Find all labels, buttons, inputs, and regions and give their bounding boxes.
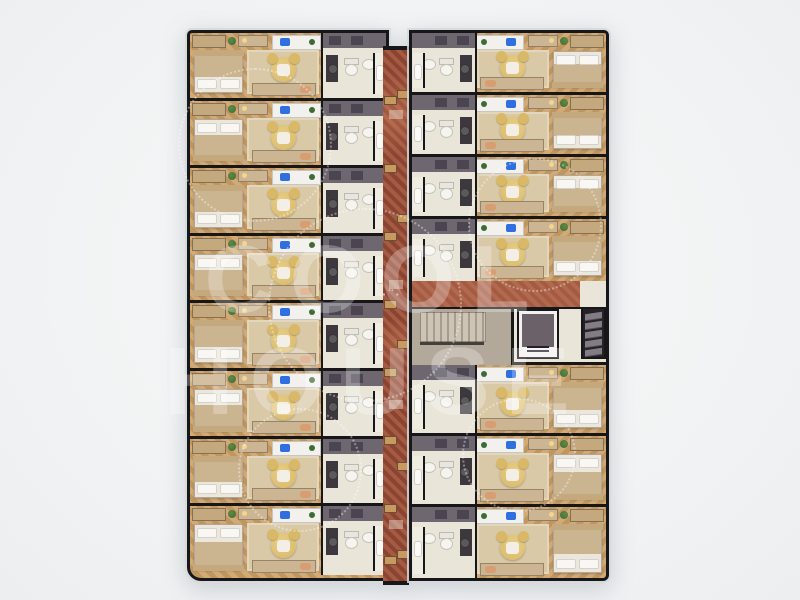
laptop — [280, 38, 290, 46]
chair-armrest — [518, 458, 529, 469]
shelf-slat — [585, 321, 602, 329]
bathroom-closet — [412, 219, 475, 234]
plant — [560, 99, 568, 107]
wardrobe-shelf — [192, 238, 226, 251]
bathroom-vanity — [326, 123, 338, 150]
lounge-chair — [500, 117, 525, 142]
living-area — [473, 365, 606, 433]
chair-armrest — [267, 391, 278, 402]
sink-bowl — [460, 188, 470, 198]
toilet-bowl — [440, 126, 453, 138]
pillow — [197, 528, 217, 538]
desk — [272, 238, 321, 253]
living-area — [190, 303, 323, 368]
pillow — [556, 262, 576, 272]
bed-headboard — [193, 290, 244, 296]
apartment-unit — [190, 236, 386, 304]
chair-armrest — [496, 531, 507, 542]
lounge-chair — [271, 328, 296, 353]
bed-pillows — [197, 258, 240, 268]
chair-armrest — [518, 387, 529, 398]
bed — [194, 119, 243, 161]
living-area — [473, 507, 606, 578]
desk — [475, 367, 524, 382]
chair-cushion — [277, 540, 290, 552]
apartment-unit — [190, 168, 386, 236]
sink-bowl — [460, 64, 470, 74]
plant — [228, 443, 236, 451]
bathroom-vanity — [326, 190, 338, 217]
bed-blanket — [195, 191, 242, 212]
desk-plant — [481, 39, 487, 45]
shelf-slat — [585, 348, 602, 356]
bed — [194, 254, 243, 296]
bed — [553, 175, 602, 211]
toilet — [344, 58, 357, 74]
apartment-unit — [190, 506, 386, 575]
desk — [272, 441, 321, 456]
accent-pillow — [485, 142, 496, 149]
bed-blanket — [554, 188, 601, 206]
closet-panel — [457, 222, 469, 231]
closet-panel — [351, 104, 363, 113]
bed-blanket — [195, 270, 242, 291]
apartment-unit — [190, 33, 386, 101]
bathroom-closet — [323, 168, 386, 183]
bed — [194, 389, 243, 431]
bathroom-closet — [412, 365, 475, 380]
bathroom-closet — [323, 439, 386, 454]
apartment-unit — [412, 33, 606, 95]
closet-panel — [435, 222, 447, 231]
pillow — [220, 123, 240, 133]
pillow — [556, 55, 576, 65]
pillow — [579, 262, 599, 272]
toilet — [344, 328, 357, 344]
chair-cushion — [506, 398, 519, 410]
accent-pillow — [300, 491, 311, 498]
bed-pillows — [556, 414, 599, 424]
accent-pillow — [485, 421, 496, 428]
bathroom — [412, 95, 477, 154]
pillow — [579, 135, 599, 145]
chair-armrest — [289, 324, 300, 335]
closet-panel — [457, 510, 469, 519]
bathroom-closet — [323, 33, 386, 48]
closet-panel — [329, 509, 341, 518]
closet-panel — [457, 439, 469, 448]
wardrobe-shelf — [570, 221, 604, 234]
apartment-unit — [412, 219, 606, 281]
bathroom — [321, 371, 386, 436]
bed-pillows — [556, 55, 599, 65]
bed-pillows — [197, 79, 240, 89]
chair-armrest — [496, 238, 507, 249]
closet-panel — [329, 104, 341, 113]
bed — [553, 237, 602, 276]
elevator — [517, 309, 559, 359]
toilet — [344, 396, 357, 412]
living-area — [190, 236, 323, 301]
plant — [228, 375, 236, 383]
accent-pillow — [485, 269, 496, 276]
accent-pillow — [300, 424, 311, 431]
closet-panel — [435, 98, 447, 107]
landing-end — [580, 281, 606, 309]
desk-plant — [481, 371, 487, 377]
bed — [553, 383, 602, 428]
bathroom — [321, 33, 386, 98]
toilet — [441, 182, 454, 198]
toilet — [344, 193, 357, 209]
laptop — [280, 106, 290, 114]
door-mat — [389, 280, 403, 289]
chair-cushion — [506, 542, 519, 554]
pillow — [220, 214, 240, 224]
bed — [553, 454, 602, 499]
chair-armrest — [289, 459, 300, 470]
dresser-cabinet — [528, 97, 558, 109]
dresser-cabinet — [238, 441, 268, 453]
dresser-cabinet — [238, 373, 268, 385]
dresser-cabinet — [238, 103, 268, 115]
laptop — [506, 370, 516, 378]
desk-plant — [309, 174, 315, 180]
plant — [228, 307, 236, 315]
toilet-bowl — [345, 267, 358, 279]
closet-panel — [351, 509, 363, 518]
right-top-units — [412, 33, 606, 281]
laptop — [506, 162, 516, 170]
laptop — [280, 511, 290, 519]
bed-pillows — [197, 528, 240, 538]
bathroom — [321, 101, 386, 166]
closet-panel — [351, 36, 363, 45]
wardrobe-shelf — [192, 508, 226, 521]
accent-pillow — [485, 80, 496, 87]
bed — [553, 51, 602, 87]
chair-cushion — [506, 186, 519, 198]
bathroom-vanity — [460, 55, 472, 82]
elevator-door-line — [527, 350, 549, 352]
bed — [553, 113, 602, 149]
desk — [272, 170, 321, 185]
unit-entry-door — [384, 556, 397, 565]
closet-panel — [457, 160, 469, 169]
toilet-bowl — [440, 250, 453, 262]
unit-entry-door — [384, 96, 397, 105]
shower — [413, 527, 425, 574]
bathroom-vanity — [460, 387, 472, 414]
chair-armrest — [289, 256, 300, 267]
wardrobe-shelf — [192, 373, 226, 386]
apartment-unit — [412, 365, 606, 436]
accent-pillow — [485, 492, 496, 499]
dresser-cabinet — [238, 305, 268, 317]
laptop — [280, 308, 290, 316]
bed-blanket — [554, 118, 601, 136]
plant — [560, 223, 568, 231]
dresser-cabinet — [238, 238, 268, 250]
bed — [194, 457, 243, 499]
wardrobe-shelf — [192, 103, 226, 116]
desk — [475, 159, 524, 174]
chair-cushion — [277, 132, 290, 144]
chair-armrest — [518, 113, 529, 124]
tv-bench — [480, 489, 544, 502]
desk — [475, 97, 524, 112]
desk-plant — [481, 225, 487, 231]
wardrobe-shelf — [570, 97, 604, 110]
landing-corridor — [412, 281, 580, 309]
shower — [413, 385, 425, 429]
sink-bowl — [460, 250, 470, 260]
dresser-cabinet — [528, 159, 558, 171]
wardrobe-shelf — [570, 35, 604, 48]
shower-tray — [414, 188, 422, 204]
toilet — [441, 244, 454, 260]
chair-armrest — [496, 387, 507, 398]
bed-blanket — [195, 462, 242, 483]
storage-shelves — [581, 307, 606, 359]
bed — [553, 525, 602, 573]
toilet-bowl — [440, 467, 453, 479]
chair-armrest — [267, 459, 278, 470]
desk-plant — [309, 242, 315, 248]
bathroom — [412, 157, 477, 216]
sink-bowl — [460, 538, 470, 548]
living-area — [473, 33, 606, 92]
bathroom — [412, 436, 477, 504]
accent-pillow — [300, 221, 311, 228]
sink-bowl — [328, 470, 338, 480]
lounge-chair — [271, 260, 296, 285]
chair-armrest — [518, 51, 529, 62]
sink-bowl — [460, 467, 470, 477]
chair-armrest — [267, 53, 278, 64]
bed — [194, 51, 243, 93]
desk — [272, 35, 321, 50]
plant — [560, 369, 568, 377]
toilet — [344, 464, 357, 480]
toilet-bowl — [345, 199, 358, 211]
chair-cushion — [506, 124, 519, 136]
shower-tray — [414, 541, 422, 557]
tv-bench — [480, 201, 544, 214]
plant — [228, 37, 236, 45]
bed — [194, 186, 243, 228]
elevator-lobby — [559, 309, 581, 359]
plant — [228, 240, 236, 248]
pillow — [197, 258, 217, 268]
chair-armrest — [496, 175, 507, 186]
shower — [413, 115, 425, 150]
dresser-cabinet — [528, 35, 558, 47]
bathroom-vanity — [326, 55, 338, 82]
corridor — [383, 46, 409, 585]
stair-treads-icon — [420, 312, 486, 342]
laptop — [506, 224, 516, 232]
living-area — [190, 168, 323, 233]
bed-headboard — [193, 565, 244, 571]
chair-cushion — [277, 64, 290, 76]
toilet — [441, 58, 454, 74]
pillow — [556, 458, 576, 468]
right-unit-column — [409, 30, 609, 581]
stair-rail — [420, 342, 484, 345]
chair-armrest — [518, 531, 529, 542]
chair-armrest — [518, 175, 529, 186]
bathroom — [321, 303, 386, 368]
dresser-cabinet — [238, 170, 268, 182]
pillow — [220, 393, 240, 403]
plant — [228, 172, 236, 180]
bathroom — [321, 439, 386, 504]
toilet-bowl — [345, 64, 358, 76]
toilet-bowl — [440, 396, 453, 408]
bed-pillows — [556, 458, 599, 468]
stairwell — [412, 309, 514, 365]
bathroom-vanity — [460, 241, 472, 268]
toilet-bowl — [345, 132, 358, 144]
bathroom-closet — [323, 303, 386, 318]
shower-tray — [414, 64, 422, 80]
pillow — [556, 414, 576, 424]
living-area — [190, 439, 323, 504]
tv-bench — [252, 488, 316, 501]
living-area — [473, 95, 606, 154]
chair-armrest — [496, 458, 507, 469]
desk-plant — [481, 163, 487, 169]
shower-tray — [414, 250, 422, 266]
laptop — [506, 38, 516, 46]
toilet — [441, 390, 454, 406]
closet-panel — [435, 36, 447, 45]
bed-pillows — [197, 123, 240, 133]
closet-panel — [351, 239, 363, 248]
elevator-door-line — [527, 346, 549, 348]
desk-plant — [309, 39, 315, 45]
bathroom-closet — [323, 371, 386, 386]
laptop — [506, 512, 516, 520]
chair-armrest — [496, 113, 507, 124]
bed-pillows — [556, 135, 599, 145]
pillow — [220, 528, 240, 538]
chair-armrest — [289, 121, 300, 132]
chair-armrest — [267, 529, 278, 540]
closet-panel — [351, 171, 363, 180]
dresser-cabinet — [528, 221, 558, 233]
accent-pillow — [485, 566, 496, 573]
desk-plant — [481, 442, 487, 448]
door-mat — [389, 400, 403, 409]
pillow — [197, 214, 217, 224]
apartment-unit — [190, 439, 386, 507]
desk — [272, 305, 321, 320]
tv-bench — [480, 77, 544, 90]
sink-bowl — [328, 64, 338, 74]
sink-bowl — [328, 537, 338, 547]
closet-panel — [329, 374, 341, 383]
pillow — [220, 258, 240, 268]
laptop — [506, 441, 516, 449]
tv-bench — [480, 266, 544, 279]
toilet-bowl — [440, 64, 453, 76]
tv-bench — [480, 139, 544, 152]
left-unit-column — [187, 30, 389, 581]
desk — [475, 35, 524, 50]
accent-pillow — [300, 356, 311, 363]
toilet — [441, 532, 454, 548]
bathroom-vanity — [460, 458, 472, 485]
living-area — [190, 33, 323, 98]
chair-armrest — [496, 51, 507, 62]
bathroom-vanity — [326, 258, 338, 285]
desk — [272, 508, 321, 523]
sink-bowl — [460, 126, 470, 136]
tv-bench — [252, 218, 316, 231]
pillow — [579, 559, 599, 569]
toilet-bowl — [440, 538, 453, 550]
closet-panel — [435, 439, 447, 448]
bathroom — [412, 219, 477, 281]
bathroom-closet — [323, 101, 386, 116]
accent-pillow — [300, 288, 311, 295]
shower — [413, 177, 425, 212]
tv-bench — [252, 83, 316, 96]
tv-bench — [252, 560, 316, 573]
shelf-slat — [585, 330, 602, 338]
bed-pillows — [197, 349, 240, 359]
bed-blanket — [554, 64, 601, 82]
bed — [194, 524, 243, 570]
pillow — [220, 349, 240, 359]
accent-pillow — [485, 204, 496, 211]
desk-plant — [309, 512, 315, 518]
lounge-chair — [500, 462, 525, 487]
pillow — [579, 458, 599, 468]
desk-plant — [481, 513, 487, 519]
pillow — [220, 79, 240, 89]
wardrobe-shelf — [570, 159, 604, 172]
lounge-chair — [500, 535, 525, 560]
toilet — [441, 461, 454, 477]
desk-plant — [309, 377, 315, 383]
sink-bowl — [328, 402, 338, 412]
bed-headboard — [552, 494, 603, 500]
unit-entry-door — [384, 164, 397, 173]
bathroom — [412, 33, 477, 92]
bathroom-closet — [412, 436, 475, 451]
sink-bowl — [460, 396, 470, 406]
plant — [560, 511, 568, 519]
tv-bench — [480, 563, 544, 576]
toilet — [344, 126, 357, 142]
lounge-chair — [500, 391, 525, 416]
toilet — [344, 531, 357, 547]
toilet-bowl — [345, 334, 358, 346]
laptop — [280, 376, 290, 384]
desk-plant — [309, 445, 315, 451]
desk — [272, 373, 321, 388]
chair-cushion — [277, 470, 290, 482]
bed — [194, 321, 243, 363]
bathroom-closet — [412, 157, 475, 172]
pillow — [197, 123, 217, 133]
pillow — [579, 414, 599, 424]
bed-pillows — [197, 214, 240, 224]
toilet — [344, 261, 357, 277]
